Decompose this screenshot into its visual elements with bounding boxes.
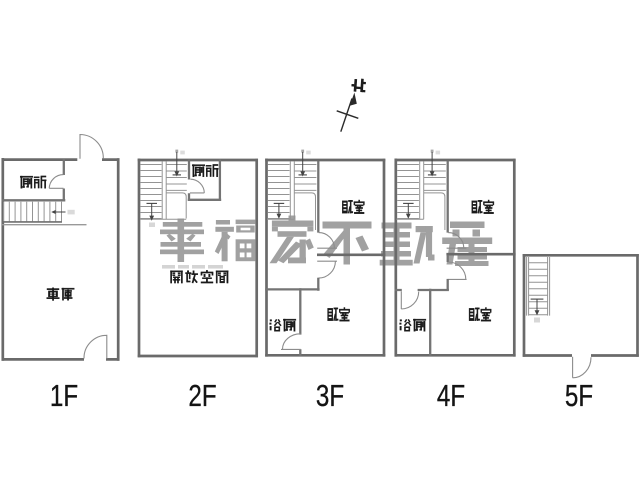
svg-text:5F: 5F	[565, 378, 593, 413]
svg-text:1F: 1F	[50, 378, 78, 413]
svg-text:4F: 4F	[437, 378, 465, 413]
svg-text:2F: 2F	[188, 378, 216, 413]
svg-text:3F: 3F	[316, 378, 344, 413]
